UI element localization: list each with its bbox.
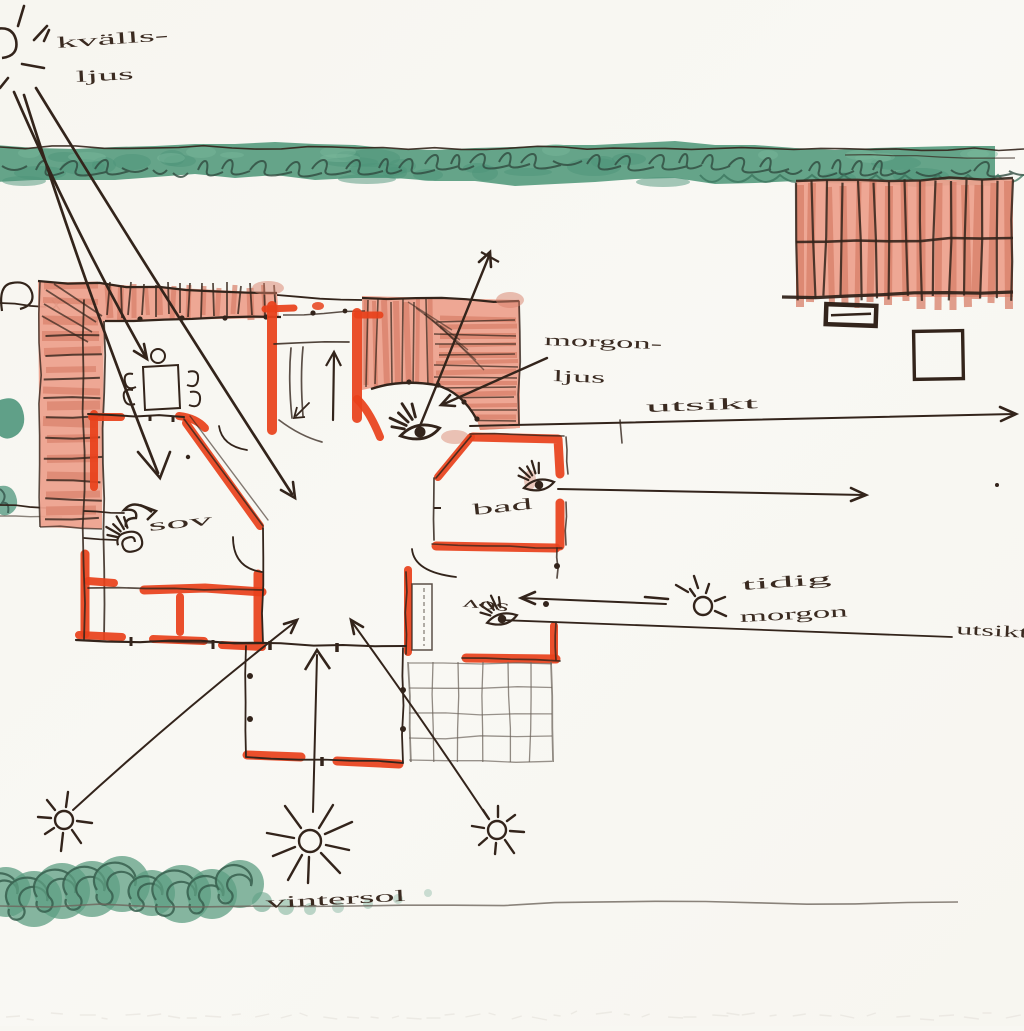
svg-text:ljus: ljus [553,368,606,387]
svg-text:ljus: ljus [75,66,134,86]
